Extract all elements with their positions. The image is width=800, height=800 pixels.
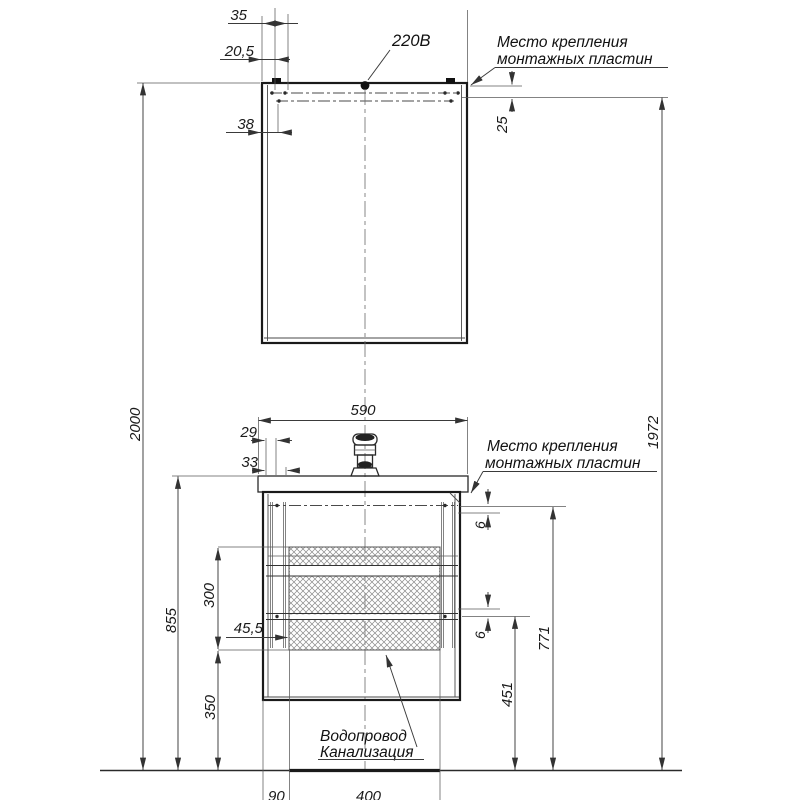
dim-300-label: 300	[201, 582, 218, 608]
power-label: 220В	[391, 32, 431, 50]
dim-20-5-label: 20,5	[224, 43, 255, 60]
dim-25-label: 25	[494, 116, 511, 134]
utility-access-zone	[289, 547, 440, 650]
fixing-hole	[277, 99, 280, 102]
dim-590-label: 590	[350, 402, 376, 419]
faucet	[351, 434, 379, 476]
mount-top-line1: Место крепления	[497, 34, 628, 51]
mount-bottom-line2: монтажных пластин	[485, 455, 641, 472]
dim-2000-label: 2000	[127, 407, 144, 442]
mirror-cabinet	[262, 78, 467, 343]
floor-dimensions: 90 400	[263, 650, 440, 800]
dim-350: 350	[202, 651, 219, 770]
dim-38-label: 38	[237, 116, 254, 133]
drawing-canvas: 35 20,5 38 220В Место крепления монтажны…	[0, 0, 800, 800]
fixing-hole	[270, 91, 273, 94]
fixing-hole	[449, 99, 452, 102]
fixing-hole	[443, 91, 446, 94]
utilities-callout: Водопровод Канализация	[318, 655, 424, 761]
mount-label-bottom: Место крепления монтажных пластин	[471, 438, 657, 493]
mount-bottom-line1: Место крепления	[487, 438, 618, 455]
power-outlet-point	[361, 81, 370, 90]
dim-33-label: 33	[241, 454, 258, 471]
mount-top-line2: монтажных пластин	[497, 51, 653, 68]
dim-45-5-label: 45,5	[234, 620, 264, 637]
dim-350-label: 350	[202, 694, 219, 720]
countertop	[258, 476, 468, 492]
drawer-gap-mask	[290, 615, 439, 620]
mount-label-top: Место крепления монтажных пластин	[471, 34, 668, 85]
dim-1972-label: 1972	[645, 415, 662, 449]
dim-855-label: 855	[163, 607, 180, 633]
dim-6a-label: 6	[472, 521, 488, 529]
dim-25: 25	[468, 10, 523, 134]
fixing-hole	[456, 91, 459, 94]
dim-29-label: 29	[239, 424, 257, 441]
dim-1972: 1972	[462, 98, 668, 771]
dim-771-label: 771	[536, 626, 553, 651]
mounting-plate-left	[272, 78, 281, 84]
installation-drawing: 35 20,5 38 220В Место крепления монтажны…	[0, 0, 800, 800]
dim-451: 451	[499, 617, 516, 771]
water-line2: Канализация	[320, 744, 414, 761]
dim-6b-label: 6	[472, 631, 488, 639]
dim-20-5: 20,5	[220, 43, 290, 60]
dim-38: 38	[226, 104, 292, 133]
dim-90-label: 90	[268, 788, 285, 800]
dim-400-label: 400	[356, 788, 382, 800]
dim-45-5: 45,5	[226, 620, 288, 638]
dim-33: 33	[241, 454, 300, 475]
power-callout: 220В	[368, 32, 431, 80]
fixing-hole	[283, 91, 286, 94]
water-line1: Водопровод	[320, 728, 407, 745]
dim-6-upper: 6	[458, 489, 566, 530]
dim-451-label: 451	[499, 682, 516, 707]
dim-35-label: 35	[230, 7, 247, 24]
dim-6-lower: 6	[458, 592, 530, 639]
drawer-gap-mask	[290, 566, 439, 576]
mounting-plate-right	[446, 78, 455, 84]
mirror-outline	[262, 83, 467, 343]
dim-771: 771	[536, 507, 553, 770]
